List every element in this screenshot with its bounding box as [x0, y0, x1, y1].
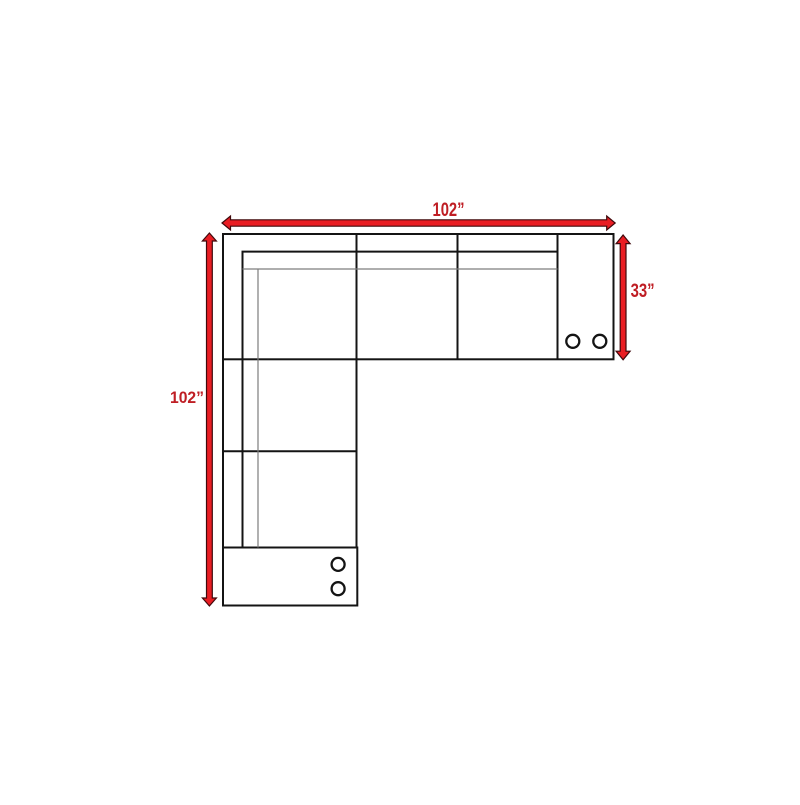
svg-text:102”: 102” — [433, 200, 465, 221]
svg-text:33”: 33” — [631, 280, 655, 302]
svg-text:102”: 102” — [170, 388, 204, 407]
